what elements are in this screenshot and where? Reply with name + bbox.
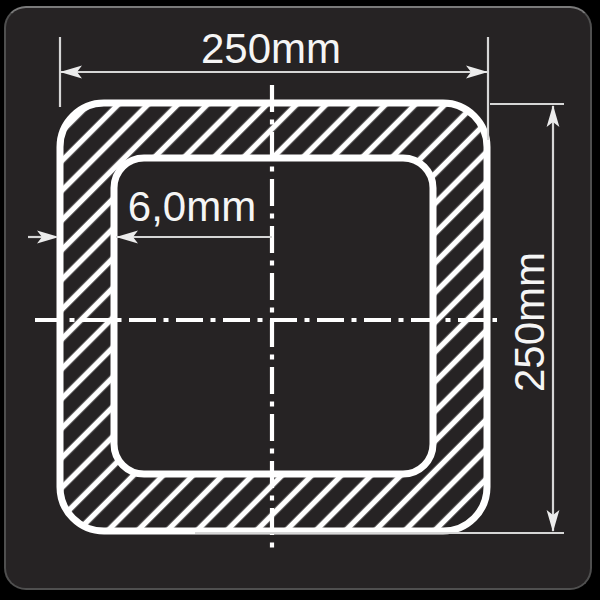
height-dimension-label: 250mm — [506, 252, 553, 392]
drawing-canvas: 250mm 250mm 6,0mm — [0, 0, 600, 600]
width-dimension-label: 250mm — [201, 25, 341, 72]
wall-thickness-label: 6,0mm — [128, 183, 256, 230]
technical-drawing: 250mm 250mm 6,0mm — [0, 0, 600, 600]
